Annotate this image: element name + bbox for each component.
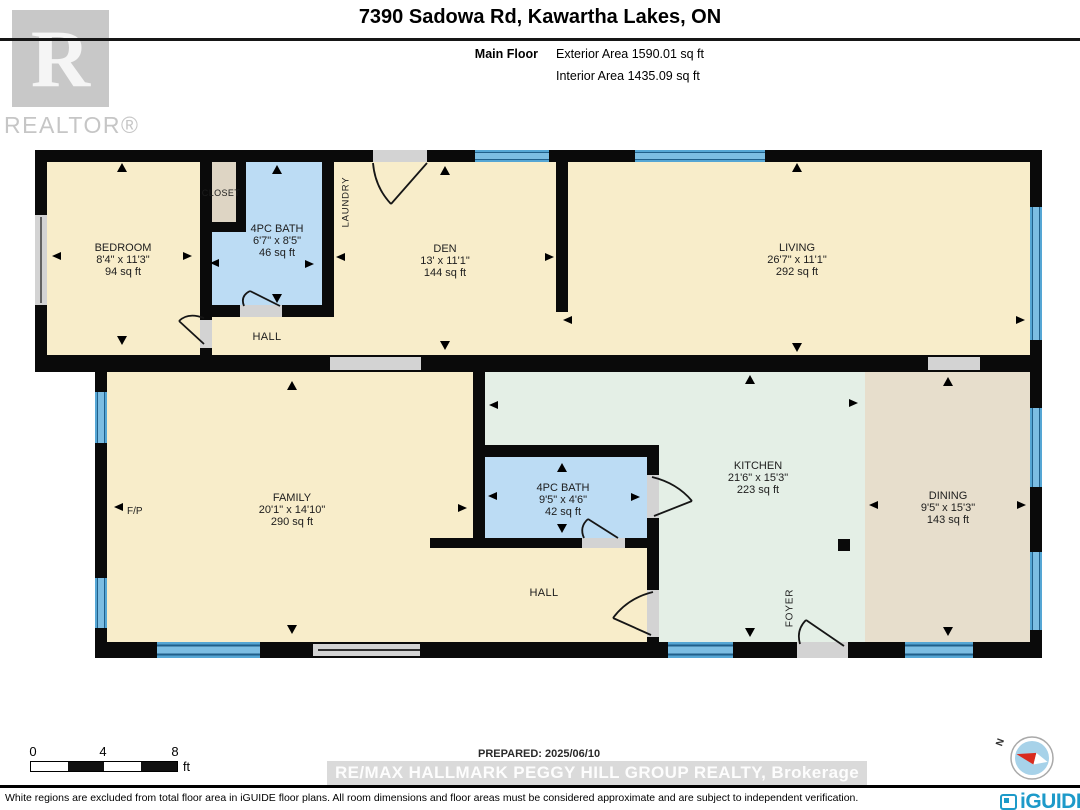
room-dims: 20'1" x 14'10" bbox=[259, 504, 325, 516]
wall bbox=[322, 150, 334, 317]
exterior-area: Exterior Area 1590.01 sq ft bbox=[556, 47, 704, 61]
dimension-arrow bbox=[272, 165, 282, 174]
dimension-arrow bbox=[117, 336, 127, 345]
window bbox=[95, 392, 107, 443]
room-dims: 21'6" x 15'3" bbox=[728, 472, 788, 484]
dimension-arrow bbox=[272, 294, 282, 303]
room-label-den: DEN 13' x 11'1" 144 sq ft bbox=[420, 243, 470, 279]
sliding-door bbox=[313, 644, 420, 656]
closet-label: CLOSET bbox=[202, 188, 240, 198]
compass-icon bbox=[1006, 732, 1058, 784]
scale-segment bbox=[31, 762, 68, 771]
realtor-r-icon: R bbox=[31, 18, 90, 100]
room-dims: 13' x 11'1" bbox=[420, 255, 470, 267]
iguide-icon bbox=[1000, 794, 1017, 810]
window bbox=[475, 150, 549, 162]
window bbox=[905, 642, 973, 658]
dimension-arrow bbox=[305, 260, 314, 268]
room-label-family: FAMILY 20'1" x 14'10" 290 sq ft bbox=[259, 492, 325, 528]
room-label-bath2: 4PC BATH 9'5" x 4'6" 42 sq ft bbox=[537, 482, 590, 518]
wall-opening bbox=[928, 357, 980, 370]
kitchen-island bbox=[838, 539, 850, 551]
hall-lower-label: HALL bbox=[529, 587, 558, 599]
dimension-arrow bbox=[210, 259, 219, 267]
interior-area: Interior Area 1435.09 sq ft bbox=[556, 69, 700, 83]
prepared-date: PREPARED: 2025/06/10 bbox=[478, 748, 600, 760]
room-name: FAMILY bbox=[259, 492, 325, 504]
dimension-arrow bbox=[849, 399, 858, 407]
wall bbox=[556, 162, 568, 312]
dimension-arrow bbox=[183, 252, 192, 260]
room-name: 4PC BATH bbox=[537, 482, 590, 494]
room-area: 223 sq ft bbox=[728, 484, 788, 496]
room-dims: 8'4" x 11'3" bbox=[95, 254, 152, 266]
dimension-arrow bbox=[557, 463, 567, 472]
room-label-dining: DINING 9'5" x 15'3" 143 sq ft bbox=[921, 490, 975, 526]
dimension-arrow bbox=[1017, 501, 1026, 509]
window-opening bbox=[35, 215, 47, 305]
dimension-arrow bbox=[943, 377, 953, 386]
room-name: DEN bbox=[420, 243, 470, 255]
room-name: 4PC BATH bbox=[251, 223, 304, 235]
dimension-arrow bbox=[943, 627, 953, 636]
room-dims: 6'7" x 8'5" bbox=[251, 235, 304, 247]
scale-tick-8: 8 bbox=[168, 744, 182, 759]
scale-bar bbox=[30, 761, 178, 772]
wall bbox=[473, 445, 659, 457]
dimension-arrow bbox=[745, 375, 755, 384]
dimension-arrow bbox=[440, 341, 450, 350]
room-hall-lower bbox=[473, 548, 647, 642]
dimension-arrow bbox=[563, 316, 572, 324]
dimension-arrow bbox=[1016, 316, 1025, 324]
dimension-arrow bbox=[792, 163, 802, 172]
dimension-arrow bbox=[631, 493, 640, 501]
wall bbox=[35, 355, 1042, 372]
fireplace-label: F/P bbox=[127, 506, 143, 517]
scale-unit: ft bbox=[183, 760, 190, 774]
door-opening bbox=[200, 320, 212, 348]
wall bbox=[473, 372, 485, 548]
room-label-bedroom: BEDROOM 8'4" x 11'3" 94 sq ft bbox=[95, 242, 152, 278]
dimension-arrow bbox=[792, 343, 802, 352]
room-area: 42 sq ft bbox=[537, 506, 590, 518]
window bbox=[1030, 207, 1042, 340]
door-opening bbox=[797, 642, 848, 658]
dimension-arrow bbox=[489, 401, 498, 409]
door-opening bbox=[373, 150, 427, 162]
hall-upper-label: HALL bbox=[252, 331, 281, 343]
header-divider bbox=[0, 38, 1080, 41]
door-opening bbox=[582, 538, 625, 548]
scale-tick-0: 0 bbox=[26, 744, 40, 759]
realtor-wordmark: REALTOR® bbox=[4, 112, 139, 139]
floor-plan-page: R REALTOR® 7390 Sadowa Rd, Kawartha Lake… bbox=[0, 0, 1080, 810]
dimension-arrow bbox=[458, 504, 467, 512]
door-opening bbox=[240, 305, 282, 317]
room-bath1-ext bbox=[212, 232, 246, 305]
window bbox=[95, 578, 107, 628]
page-title: 7390 Sadowa Rd, Kawartha Lakes, ON bbox=[0, 6, 1080, 29]
room-area: 292 sq ft bbox=[767, 266, 827, 278]
room-name: BEDROOM bbox=[95, 242, 152, 254]
disclaimer-text: White regions are excluded from total fl… bbox=[5, 792, 858, 804]
room-name: KITCHEN bbox=[728, 460, 788, 472]
room-area: 290 sq ft bbox=[259, 516, 325, 528]
dimension-arrow bbox=[336, 253, 345, 261]
window bbox=[1030, 552, 1042, 630]
room-dims: 26'7" x 11'1" bbox=[767, 254, 827, 266]
room-area: 46 sq ft bbox=[251, 247, 304, 259]
scale-segment bbox=[68, 762, 105, 771]
dimension-arrow bbox=[117, 163, 127, 172]
window bbox=[157, 642, 260, 658]
room-label-kitchen: KITCHEN 21'6" x 15'3" 223 sq ft bbox=[728, 460, 788, 496]
dimension-arrow bbox=[287, 381, 297, 390]
room-area: 144 sq ft bbox=[420, 267, 470, 279]
room-dims: 9'5" x 4'6" bbox=[537, 494, 590, 506]
scale-segment bbox=[104, 762, 141, 771]
window bbox=[1030, 408, 1042, 487]
foyer-label: FOYER bbox=[785, 589, 796, 627]
dimension-arrow bbox=[545, 253, 554, 261]
wall-opening bbox=[330, 357, 421, 370]
dimension-arrow bbox=[287, 625, 297, 634]
room-name: LIVING bbox=[767, 242, 827, 254]
dimension-arrow bbox=[745, 628, 755, 637]
window bbox=[635, 150, 765, 162]
iguide-wordmark: iGUIDE bbox=[1020, 790, 1080, 810]
room-name: DINING bbox=[921, 490, 975, 502]
door-opening bbox=[647, 590, 659, 637]
dimension-arrow bbox=[114, 503, 123, 511]
door-opening bbox=[647, 475, 659, 518]
scale-tick-4: 4 bbox=[96, 744, 110, 759]
room-area: 94 sq ft bbox=[95, 266, 152, 278]
laundry-label: LAUNDRY bbox=[341, 177, 352, 228]
dimension-arrow bbox=[52, 252, 61, 260]
dimension-arrow bbox=[488, 492, 497, 500]
dimension-arrow bbox=[440, 166, 450, 175]
brokerage-watermark: RE/MAX HALLMARK PEGGY HILL GROUP REALTY,… bbox=[327, 761, 867, 785]
scale-segment bbox=[141, 762, 178, 771]
room-area: 143 sq ft bbox=[921, 514, 975, 526]
window bbox=[668, 642, 733, 658]
floor-label: Main Floor bbox=[420, 47, 538, 61]
iguide-logo: iGUIDE bbox=[1000, 790, 1080, 810]
dimension-arrow bbox=[869, 501, 878, 509]
room-label-living: LIVING 26'7" x 11'1" 292 sq ft bbox=[767, 242, 827, 278]
room-dims: 9'5" x 15'3" bbox=[921, 502, 975, 514]
dimension-arrow bbox=[557, 524, 567, 533]
room-label-bath1: 4PC BATH 6'7" x 8'5" 46 sq ft bbox=[251, 223, 304, 259]
footer-divider bbox=[0, 785, 1080, 788]
